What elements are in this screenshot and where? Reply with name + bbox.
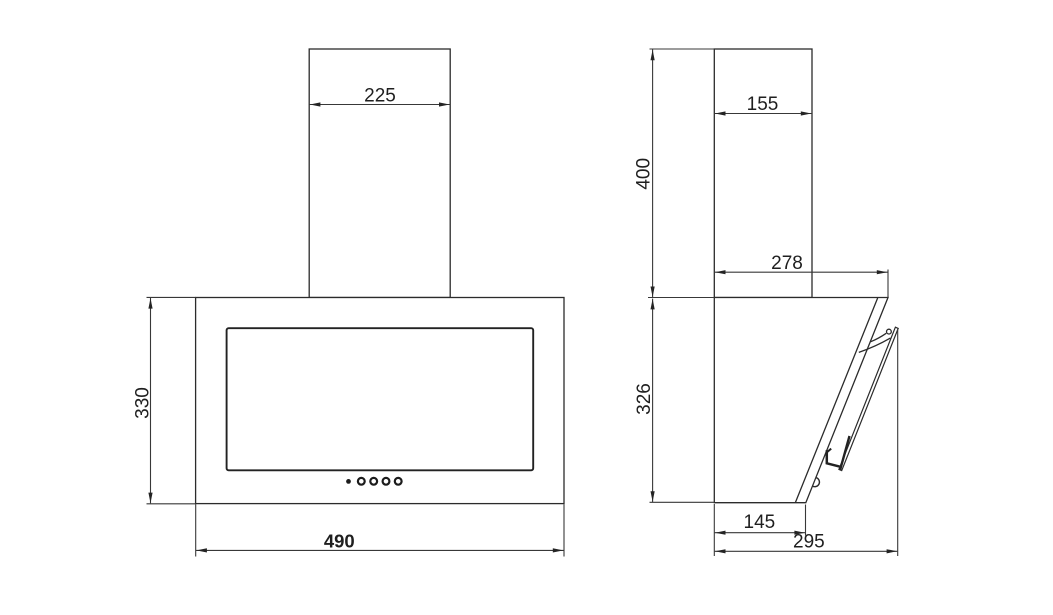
svg-text:330: 330 — [133, 387, 154, 419]
svg-text:326: 326 — [634, 383, 655, 415]
svg-text:278: 278 — [771, 253, 803, 274]
svg-text:225: 225 — [364, 86, 396, 107]
svg-text:155: 155 — [747, 94, 779, 115]
svg-text:490: 490 — [324, 530, 355, 551]
svg-text:400: 400 — [634, 158, 655, 190]
svg-text:295: 295 — [793, 532, 825, 553]
svg-text:145: 145 — [744, 512, 776, 533]
